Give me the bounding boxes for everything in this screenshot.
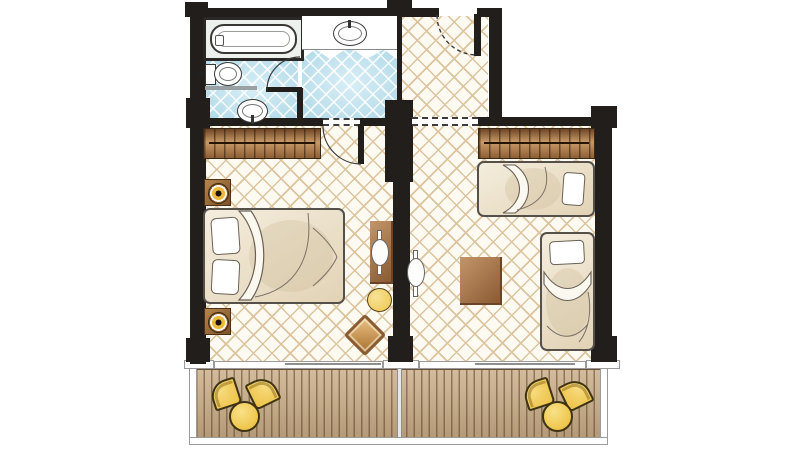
vanity-corridor-floor bbox=[302, 48, 397, 118]
wall-outer-right bbox=[595, 117, 612, 362]
bathroom-door-leaf bbox=[266, 87, 302, 92]
double-bed-linens bbox=[205, 210, 343, 302]
toilet-partition bbox=[205, 86, 257, 90]
sliding-panel-right bbox=[475, 363, 575, 365]
wardrobe-right bbox=[478, 128, 595, 159]
entry-lounge-opening bbox=[412, 117, 478, 126]
sliding-panel-left bbox=[285, 363, 381, 365]
toilet-bowl bbox=[214, 62, 242, 86]
bathtub-faucet-icon bbox=[215, 35, 224, 46]
wall-post-left-bottom bbox=[186, 338, 210, 362]
nightstand-top bbox=[204, 179, 231, 206]
lamp-icon bbox=[208, 183, 229, 204]
single-bed-top-linens bbox=[479, 163, 593, 215]
toilet-flush-icon bbox=[199, 71, 203, 75]
wall-entry-right bbox=[489, 8, 502, 120]
balcony-rail-bottom bbox=[189, 437, 608, 445]
lamp-icon bbox=[208, 312, 229, 333]
bedroom-door-opening bbox=[323, 118, 360, 126]
single-bed-right-linens bbox=[542, 234, 593, 349]
stool bbox=[367, 288, 392, 312]
wall-post-right-top bbox=[591, 106, 617, 128]
bathtub-basin bbox=[210, 24, 297, 54]
nightstand-bottom bbox=[204, 308, 231, 335]
coffee-table bbox=[460, 257, 502, 305]
wardrobe-rail bbox=[209, 142, 316, 144]
wall-post-divider-bottom bbox=[388, 336, 413, 362]
balcony-rail-right bbox=[600, 366, 608, 444]
bathtub bbox=[203, 17, 304, 61]
wall-room-divider bbox=[393, 118, 410, 362]
floor-plan bbox=[0, 0, 800, 450]
bathtub-inner-line bbox=[217, 31, 290, 47]
vanity-sink-inner bbox=[338, 26, 362, 41]
balcony-divider bbox=[397, 368, 402, 437]
toilet-bowl-inner bbox=[219, 67, 237, 81]
balcony-table-left bbox=[229, 401, 260, 432]
single-bed-top bbox=[477, 161, 595, 217]
wall-bathroom-inner bbox=[297, 88, 303, 120]
wardrobe-rail bbox=[484, 142, 590, 144]
double-bed bbox=[203, 208, 345, 304]
tv-mirror-left bbox=[371, 239, 389, 266]
wardrobe-left bbox=[203, 128, 321, 159]
wall-top-entry bbox=[402, 8, 439, 17]
tv-mirror-right bbox=[407, 258, 425, 287]
single-bed-right bbox=[540, 232, 595, 351]
vanity-faucet-icon bbox=[348, 20, 351, 28]
washbasin-faucet-icon bbox=[251, 115, 254, 124]
entry-door-leaf bbox=[474, 14, 481, 56]
balcony-table-right bbox=[542, 401, 573, 432]
bedroom-door-leaf bbox=[358, 124, 364, 164]
balcony-rail-left bbox=[189, 366, 197, 444]
